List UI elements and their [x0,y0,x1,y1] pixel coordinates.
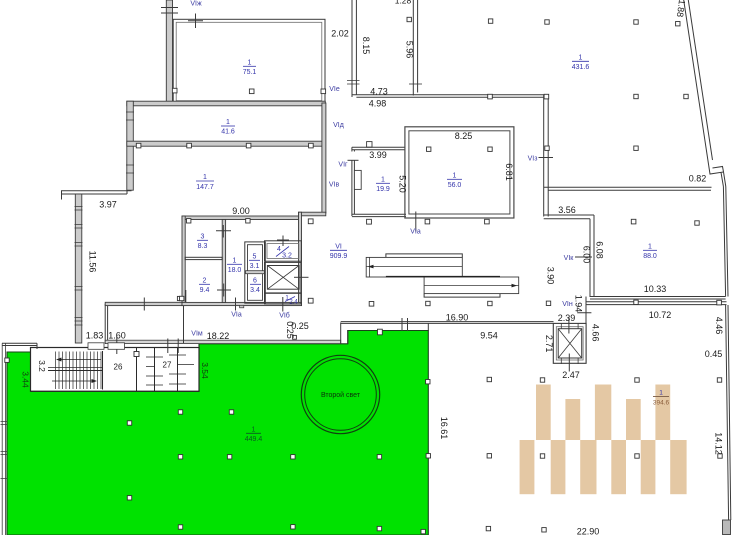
svg-text:56.0: 56.0 [448,182,462,189]
svg-text:5.96: 5.96 [405,41,415,59]
svg-text:9.4: 9.4 [200,287,210,294]
svg-text:8.25: 8.25 [455,131,473,141]
svg-text:6.08: 6.08 [595,241,605,259]
svg-text:VI: VI [335,244,342,251]
svg-text:5: 5 [253,254,257,261]
svg-text:1.60: 1.60 [108,331,126,341]
svg-text:2.47: 2.47 [562,370,580,380]
svg-text:VIв: VIв [329,182,340,189]
svg-text:1: 1 [659,390,663,397]
svg-text:1: 1 [381,177,385,184]
svg-text:2.4: 2.4 [289,300,298,306]
svg-text:3.99: 3.99 [369,150,387,160]
svg-text:VIз: VIз [528,156,538,163]
svg-text:1: 1 [252,427,256,434]
svg-text:1.83: 1.83 [86,331,104,341]
svg-text:4.73: 4.73 [370,87,388,97]
svg-text:449.4: 449.4 [245,436,263,443]
svg-text:VIд: VIд [333,122,344,129]
svg-text:75.1: 75.1 [243,69,257,76]
svg-text:8.3: 8.3 [198,243,208,250]
svg-text:8.15: 8.15 [361,37,371,55]
svg-text:2.02: 2.02 [331,29,349,39]
svg-text:88.0: 88.0 [643,253,657,260]
svg-text:Второй свет: Второй свет [321,391,361,399]
svg-text:VIе: VIе [329,86,340,93]
svg-text:909.9: 909.9 [330,253,348,260]
svg-text:147.7: 147.7 [196,184,214,191]
svg-text:431.6: 431.6 [572,64,590,71]
svg-text:3.97: 3.97 [99,200,117,210]
svg-text:5.20: 5.20 [398,175,408,193]
svg-text:VIн: VIн [562,301,573,308]
svg-text:0.25: 0.25 [285,321,295,339]
svg-text:27: 27 [163,361,172,370]
svg-text:10.72: 10.72 [649,310,672,320]
svg-text:3.2: 3.2 [37,360,47,372]
svg-text:4: 4 [277,246,281,253]
svg-text:2: 2 [203,278,207,285]
svg-text:VIб: VIб [279,312,290,320]
svg-text:3.44: 3.44 [21,371,31,388]
svg-text:0.45: 0.45 [705,349,723,359]
svg-text:4.66: 4.66 [591,324,601,342]
svg-text:VIа: VIа [410,229,421,236]
svg-text:18.0: 18.0 [228,267,242,274]
svg-text:VIг: VIг [338,162,348,169]
svg-text:4.46: 4.46 [714,317,724,335]
svg-text:3.4: 3.4 [250,287,260,294]
svg-text:9.00: 9.00 [232,206,250,216]
svg-text:0.82: 0.82 [689,174,707,184]
svg-text:41.6: 41.6 [221,129,235,136]
svg-text:3.2: 3.2 [282,253,292,260]
svg-text:1.94: 1.94 [573,295,583,313]
svg-text:1.28: 1.28 [395,0,412,6]
svg-text:2.71: 2.71 [544,335,554,353]
svg-text:1: 1 [203,174,207,181]
svg-text:VIк: VIк [564,255,575,262]
svg-text:22.90: 22.90 [577,527,600,535]
svg-text:VIм: VIм [191,331,203,338]
svg-text:1: 1 [648,244,652,251]
svg-text:19.9: 19.9 [376,186,390,193]
svg-text:6.00: 6.00 [582,246,592,264]
svg-text:9.54: 9.54 [480,331,498,341]
svg-text:2.39: 2.39 [558,313,576,323]
svg-text:18.22: 18.22 [207,331,230,341]
svg-text:1: 1 [453,173,457,180]
svg-text:3.1: 3.1 [250,263,260,270]
svg-text:16.61: 16.61 [439,417,449,440]
svg-text:1.88: 1.88 [675,0,687,18]
svg-text:3.54: 3.54 [200,362,210,379]
svg-text:11.56: 11.56 [88,251,98,273]
svg-text:394.6: 394.6 [653,400,670,407]
svg-text:VIж: VIж [190,1,202,8]
svg-text:10.33: 10.33 [644,284,667,294]
svg-text:26: 26 [114,363,123,372]
svg-text:6.81: 6.81 [504,163,514,181]
svg-text:1: 1 [579,55,583,62]
svg-text:VIа: VIа [231,312,242,319]
svg-text:6: 6 [253,278,257,285]
svg-text:1: 1 [248,60,252,67]
svg-text:1: 1 [226,119,230,126]
svg-text:1: 1 [233,258,237,265]
svg-text:14.12: 14.12 [714,432,724,455]
svg-text:4.98: 4.98 [369,99,387,109]
svg-text:3.56: 3.56 [558,205,576,215]
svg-text:3: 3 [201,234,205,241]
svg-text:3.90: 3.90 [546,267,556,285]
svg-text:16.90: 16.90 [446,313,469,323]
